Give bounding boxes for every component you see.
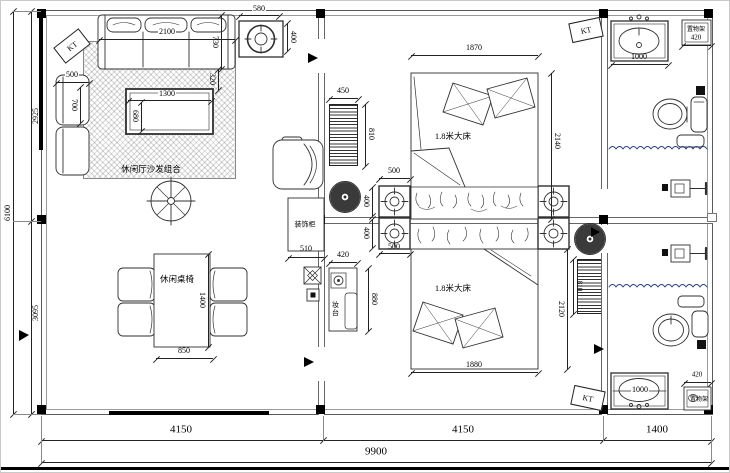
dim-bed1-height: 2140 — [553, 133, 561, 149]
dim-line — [611, 64, 668, 65]
armchair — [273, 137, 323, 189]
dim-line — [411, 55, 538, 56]
dim-sofa-depth: 730 — [211, 36, 219, 48]
dim-line — [573, 259, 574, 314]
dim-radiator2-height: 810 — [576, 281, 583, 292]
label-decor-cabinet: 装饰柜 — [295, 222, 316, 229]
dim-bed2-width: 1880 — [466, 361, 482, 369]
dim-dresser-width: 420 — [337, 251, 349, 259]
floor-plan-canvas: KT KT KT 6100 2925 3095 4150 4150 1400 9… — [0, 0, 730, 473]
ceiling-fixture-box — [239, 21, 283, 57]
sheet-edge — [1, 467, 730, 470]
dim-sofa-side: 320 — [208, 73, 216, 85]
dim-ceiling-height: 400 — [289, 31, 297, 43]
dim-line — [372, 187, 373, 216]
dim-line-left-total — [13, 11, 14, 414]
dim-bed1-width: 1870 — [466, 44, 482, 52]
ceiling-rose-symbol — [147, 177, 195, 225]
dim-coffee-depth: 680 — [131, 110, 139, 122]
dining-set — [118, 254, 247, 347]
dim-sink2-width: 1000 — [631, 386, 649, 394]
dim-bottom-right: 1400 — [646, 425, 668, 436]
label-shelf2: 置物架 — [690, 397, 708, 403]
extension-line — [13, 11, 41, 12]
shower-symbol-2 — [662, 245, 706, 262]
dim-side-sofa-depth: 700 — [70, 99, 78, 111]
kt-label: KT — [582, 392, 594, 403]
dim-line — [218, 69, 219, 90]
dim-line-left-inner — [31, 11, 32, 414]
fan-symbol-2 — [575, 224, 606, 255]
dim-line — [368, 268, 369, 331]
extension-line — [711, 416, 712, 463]
dim-left-total: 6100 — [4, 205, 12, 221]
dim-ceiling-width: 580 — [252, 5, 266, 13]
dim-line — [411, 372, 538, 373]
dim-bed2-height: 2120 — [557, 301, 565, 317]
label-sofa-group: 休闲厅沙发组合 — [121, 165, 181, 174]
dim-line — [288, 257, 324, 258]
extension-line — [323, 416, 324, 441]
label-bed2: 1.8米大床 — [435, 284, 471, 293]
dim-downlight-span-top: 500 — [388, 167, 400, 175]
shower-curtain-2 — [609, 285, 707, 288]
dim-line-bottom-total — [41, 462, 711, 463]
dim-shelf1-width: 420 — [691, 35, 702, 42]
dim-line-bottom-row1 — [41, 440, 711, 441]
dim-cabinet-width: 510 — [300, 245, 312, 253]
dim-line — [221, 15, 222, 69]
dim-sink1-width: 1000 — [631, 53, 647, 61]
dim-line — [56, 82, 89, 83]
dim-left-upper: 2925 — [32, 108, 40, 124]
extension-line — [41, 416, 42, 463]
dim-line — [684, 382, 711, 383]
dim-line — [141, 102, 142, 131]
dim-downlight-size-bottom: 400 — [362, 227, 370, 239]
dim-line — [287, 23, 288, 51]
dim-line — [682, 45, 711, 46]
dim-line — [379, 178, 410, 179]
dim-line — [128, 100, 211, 101]
dim-coffee-width: 1300 — [158, 90, 176, 98]
label-leisure-table: 休闲桌椅 — [160, 275, 194, 284]
label-bed1: 1.8米大床 — [435, 132, 471, 141]
dim-bottom-left: 4150 — [170, 425, 192, 436]
dim-line — [365, 104, 366, 166]
dim-downlight-span-bottom: 500 — [388, 243, 400, 251]
dim-radiator1-width: 450 — [337, 87, 349, 95]
dim-sofa-width: 2100 — [158, 28, 176, 36]
dim-line — [372, 219, 373, 248]
dim-shelf2-width: 420 — [692, 372, 703, 379]
dim-line — [567, 249, 568, 369]
dim-line — [379, 253, 410, 254]
extension-line — [13, 414, 41, 415]
dim-downlight-size-top: 400 — [362, 195, 370, 207]
dim-bottom-total: 9900 — [365, 447, 387, 458]
bed-1 — [411, 73, 538, 219]
dim-left-lower: 3095 — [32, 305, 40, 321]
bed-2 — [411, 227, 538, 369]
dim-radiator1-height: 810 — [367, 128, 375, 140]
dim-table-length: 1400 — [198, 292, 206, 308]
dressing-table — [329, 268, 357, 331]
dim-line — [551, 73, 552, 219]
ceiling-device-icons — [304, 267, 321, 301]
dim-line — [156, 358, 213, 359]
dim-bottom-mid: 4150 — [452, 425, 474, 436]
label-dressing-table: 妆台 — [332, 301, 339, 317]
dim-line — [329, 262, 357, 263]
extension-line — [13, 221, 41, 222]
shower-symbol-1 — [662, 180, 706, 197]
kt-label: KT — [580, 24, 592, 35]
toilet-2 — [653, 296, 708, 349]
dim-line — [80, 87, 81, 123]
dim-table-width: 850 — [178, 347, 190, 355]
fan-symbol-1 — [330, 182, 361, 213]
label-shelf1: 置物架 — [687, 27, 705, 33]
dim-line — [239, 15, 279, 16]
extension-line — [603, 416, 604, 441]
kt-label: KT — [65, 39, 79, 53]
toilet-1 — [653, 86, 707, 147]
dim-line — [329, 98, 358, 99]
side-sofa — [56, 75, 89, 175]
dim-dresser-height: 880 — [370, 293, 378, 305]
dim-line — [208, 254, 209, 347]
dim-side-sofa-width: 500 — [65, 71, 79, 79]
